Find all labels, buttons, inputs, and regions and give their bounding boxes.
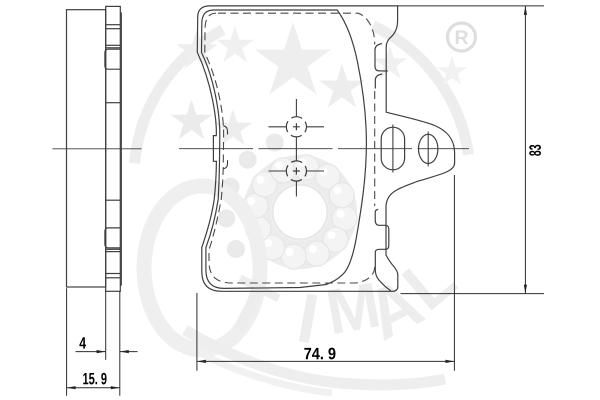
svg-text:R: R — [454, 27, 468, 49]
